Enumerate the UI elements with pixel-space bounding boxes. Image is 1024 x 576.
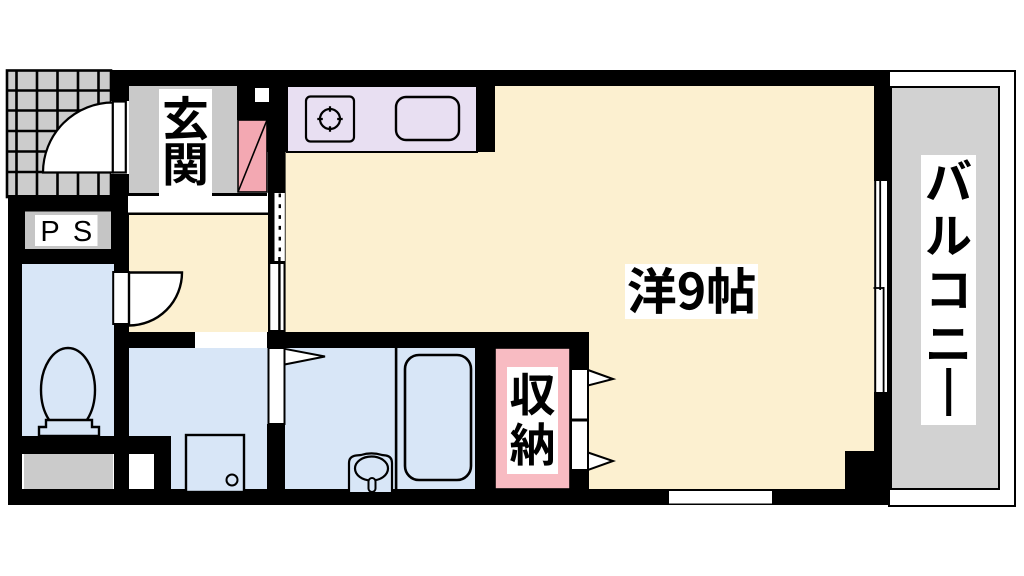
svg-text:S: S [73,216,92,248]
svg-text:P: P [40,216,59,248]
